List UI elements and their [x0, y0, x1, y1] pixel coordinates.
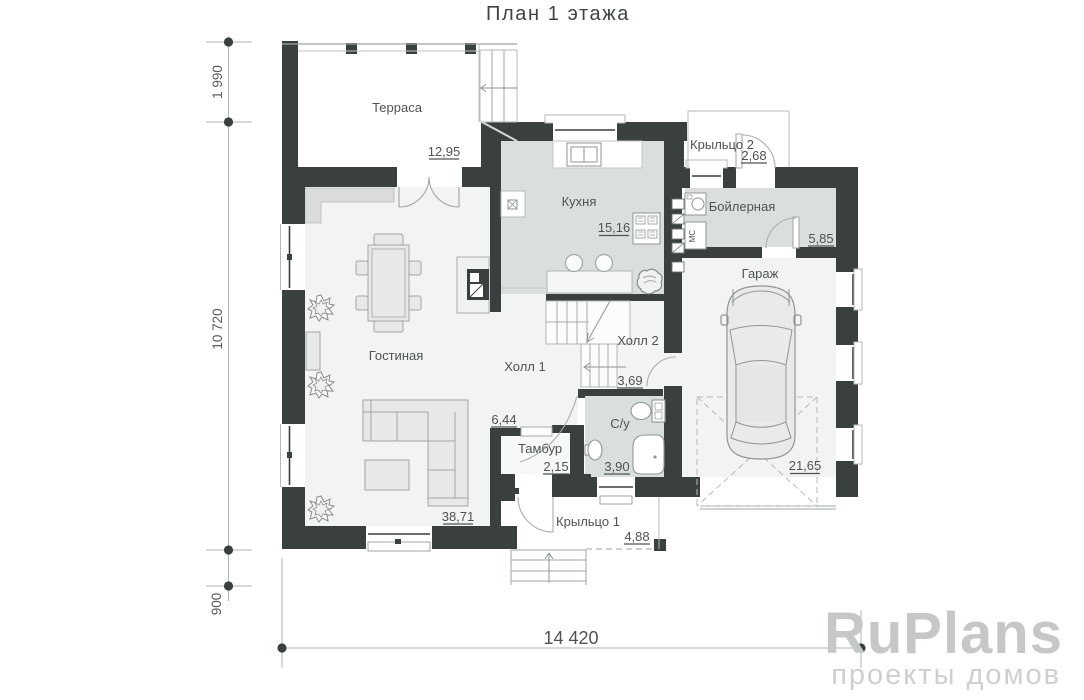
- svg-text:Тамбур: Тамбур: [518, 441, 562, 456]
- svg-text:Холл 1: Холл 1: [504, 359, 545, 374]
- svg-text:14 420: 14 420: [543, 628, 598, 648]
- svg-text:Терраса: Терраса: [372, 100, 423, 115]
- svg-text:Холл 2: Холл 2: [617, 333, 658, 348]
- svg-text:План 1 этажа: План 1 этажа: [486, 3, 630, 25]
- svg-text:RuPlans: RuPlans: [824, 601, 1063, 666]
- svg-text:12,95: 12,95: [428, 144, 461, 159]
- svg-text:6,44: 6,44: [491, 412, 516, 427]
- svg-text:проекты домов: проекты домов: [831, 659, 1061, 691]
- svg-text:МС: МС: [688, 230, 697, 243]
- svg-text:5,85: 5,85: [808, 231, 833, 246]
- svg-text:Кухня: Кухня: [562, 194, 597, 209]
- svg-text:1 990: 1 990: [210, 65, 225, 99]
- svg-text:С/у: С/у: [610, 416, 630, 431]
- svg-text:38,71: 38,71: [442, 509, 475, 524]
- svg-text:3,90: 3,90: [604, 459, 629, 474]
- svg-text:Крыльцо 1: Крыльцо 1: [556, 514, 620, 529]
- svg-text:4,88: 4,88: [624, 529, 649, 544]
- svg-text:21,65: 21,65: [789, 458, 822, 473]
- svg-text:3,69: 3,69: [617, 373, 642, 388]
- svg-text:Гараж: Гараж: [742, 266, 779, 281]
- svg-text:900: 900: [209, 593, 224, 616]
- svg-text:15,16: 15,16: [598, 220, 631, 235]
- svg-text:10 720: 10 720: [210, 308, 225, 349]
- svg-text:2,15: 2,15: [543, 459, 568, 474]
- svg-text:Гостиная: Гостиная: [369, 348, 424, 363]
- svg-text:2,68: 2,68: [741, 148, 766, 163]
- svg-text:Бойлерная: Бойлерная: [709, 199, 776, 214]
